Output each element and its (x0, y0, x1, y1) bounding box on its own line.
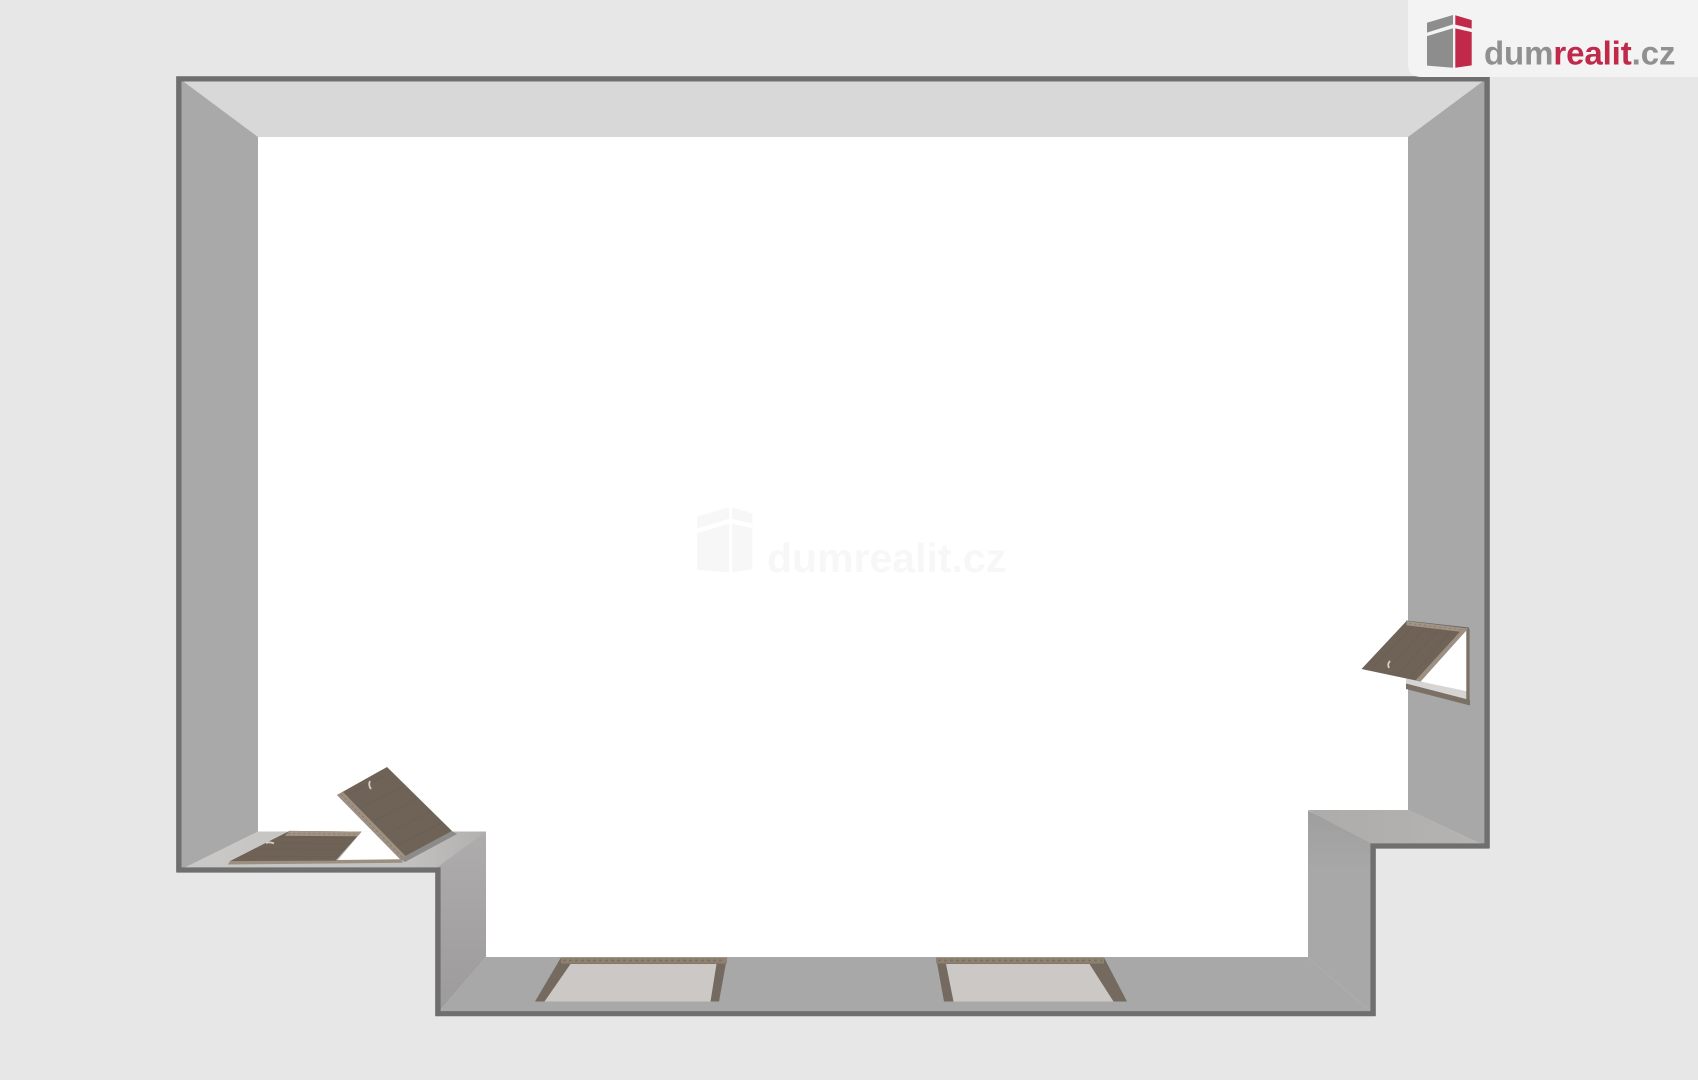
svg-text:dumrealit.cz: dumrealit.cz (767, 535, 1006, 581)
svg-text:dumrealit.cz: dumrealit.cz (1484, 35, 1675, 72)
